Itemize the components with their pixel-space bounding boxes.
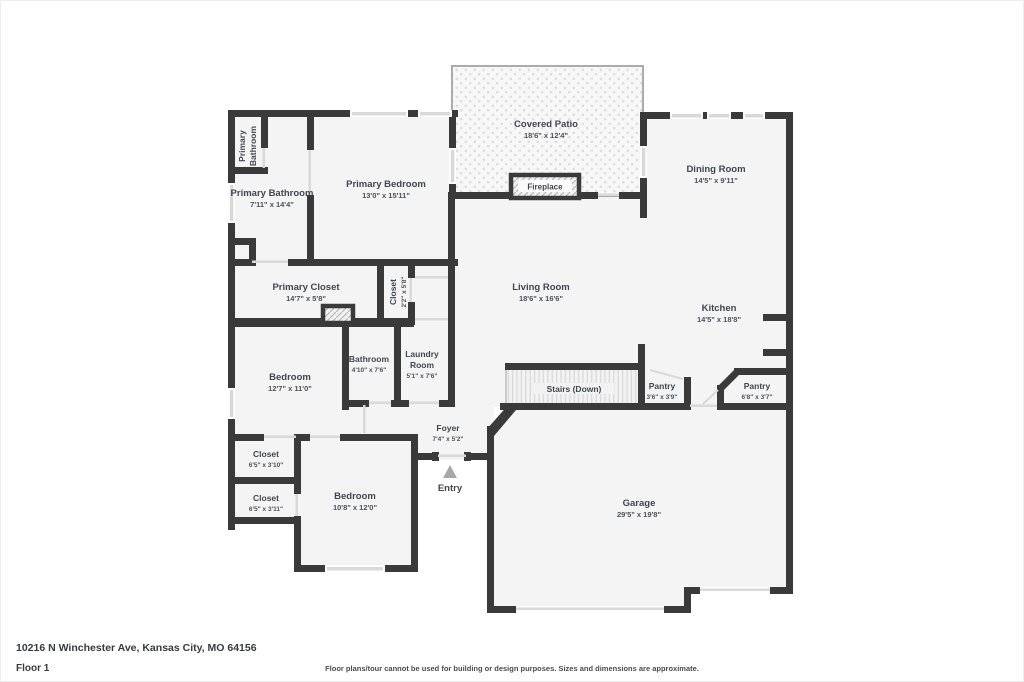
label-kitchen-dims: 14'5" x 18'8" <box>697 315 741 324</box>
label-pantry-large-dims: 6'8" x 3'7" <box>742 394 773 401</box>
label-living-room-name: Living Room <box>512 282 570 293</box>
label-primary-bathroom-name: Primary Bathroom <box>231 188 314 199</box>
label-primary-bathroom-dims: 7'11" x 14'4" <box>250 200 294 209</box>
label-bedroom-left-name: Bedroom <box>269 372 311 383</box>
label-closet-hall-dims: 2'2" x 5'8" <box>401 277 408 308</box>
label-entry: Entry <box>438 483 463 494</box>
label-bedroom-left-dims: 12'7" x 11'0" <box>268 384 312 393</box>
label-kitchen-name: Kitchen <box>702 303 737 314</box>
label-laundry-room-line2: Room <box>410 360 435 370</box>
label-dining-room-dims: 14'5" x 9'11" <box>694 176 738 185</box>
label-primary-closet-name: Primary Closet <box>272 282 340 293</box>
fireplace-label: Fireplace <box>527 183 563 192</box>
floor-plan-page: Fireplace Primary Bathroom Primary Bathr… <box>0 0 1024 682</box>
footer: 10216 N Winchester Ave, Kansas City, MO … <box>16 642 699 674</box>
label-covered-patio-dims: 18'6" x 12'4" <box>524 131 568 140</box>
label-garage-dims: 29'5" x 19'8" <box>617 510 661 519</box>
label-pantry-small-dims: 3'6" x 3'9" <box>647 394 678 401</box>
label-bedroom-lower-name: Bedroom <box>334 491 376 502</box>
label-primary-closet-dims: 14'7" x 5'8" <box>286 294 326 303</box>
label-dining-room-name: Dining Room <box>686 164 745 175</box>
fireplace: Fireplace <box>511 175 579 198</box>
label-closet-lower-name: Closet <box>253 493 279 503</box>
label-primary-bathroom-wc-line1: Primary <box>237 130 247 162</box>
footer-disclaimer: Floor plans/tour cannot be used for buil… <box>325 664 699 673</box>
label-pantry-small-name: Pantry <box>649 381 676 391</box>
label-primary-bedroom-name: Primary Bedroom <box>346 179 426 190</box>
label-primary-bedroom-dims: 13'0" x 15'11" <box>362 191 410 200</box>
label-laundry-room-dims: 5'1" x 7'6" <box>407 373 438 380</box>
entry-arrow-icon <box>443 465 457 478</box>
footer-address: 10216 N Winchester Ave, Kansas City, MO … <box>16 642 257 654</box>
label-bedroom-lower-dims: 10'8" x 12'0" <box>333 503 377 512</box>
label-stairs: Stairs (Down) <box>547 384 602 394</box>
label-bathroom-dims: 4'10" x 7'6" <box>352 367 387 374</box>
footer-floor-label: Floor 1 <box>16 663 50 674</box>
label-closet-lower-dims: 6'5" x 3'11" <box>249 506 283 513</box>
closet-hatch-fixture <box>323 306 353 323</box>
label-pantry-large-name: Pantry <box>744 381 771 391</box>
label-closet-upper-dims: 6'5" x 3'10" <box>249 462 284 469</box>
label-primary-bathroom-wc-line2: Bathroom <box>248 125 258 166</box>
label-laundry-room-line1: Laundry <box>405 349 439 359</box>
label-closet-upper-name: Closet <box>253 449 279 459</box>
label-garage-name: Garage <box>623 498 656 509</box>
label-closet-hall-name: Closet <box>388 279 398 305</box>
label-foyer-name: Foyer <box>436 423 460 433</box>
label-covered-patio-name: Covered Patio <box>514 119 578 130</box>
floor-plan-canvas: Fireplace Primary Bathroom Primary Bathr… <box>0 0 1024 682</box>
label-foyer-dims: 7'4" x 5'2" <box>433 436 464 443</box>
label-bathroom-name: Bathroom <box>349 354 390 364</box>
label-living-room-dims: 18'6" x 16'6" <box>519 294 563 303</box>
